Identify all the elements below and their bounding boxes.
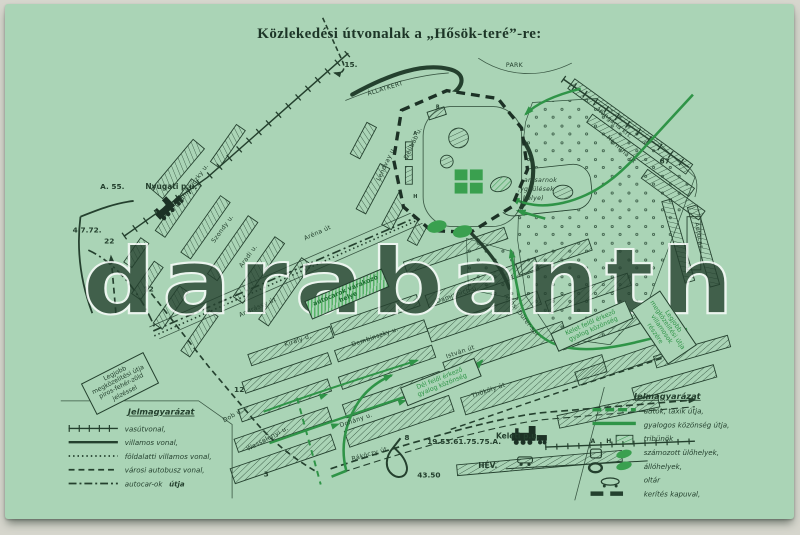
area-label-park: PARK xyxy=(506,62,524,69)
legend-left-item-4-suffix: útja xyxy=(169,480,185,489)
legend-right-item-6: kerítés kapuval, xyxy=(644,489,701,498)
legend-left-item-1: villamos vonal, xyxy=(125,438,178,447)
tribune-letter-h: H xyxy=(413,194,417,200)
legend-tribune-symbol xyxy=(616,435,633,444)
legend-fence-symbol xyxy=(591,491,604,495)
route-number-a55: A. 55. xyxy=(100,182,124,191)
legend-left-item-2: földalatti villamos vonal, xyxy=(125,452,212,461)
legend-left-item-3: városi autobusz vonal, xyxy=(125,466,205,475)
station-label-nyugati: Nyugati p.u. xyxy=(145,182,197,191)
heroes-square: A B H xyxy=(394,91,528,240)
station-label-hev: HÉV. xyxy=(478,461,497,470)
railway-nyugati xyxy=(124,53,349,236)
legend-left-item-0: vasútvonal, xyxy=(125,424,166,433)
route-number-15: 15. xyxy=(344,60,357,69)
legend-left-title: Jelmagyarázat xyxy=(126,407,196,417)
legend-right-item-0: autók, taxik útja, xyxy=(644,407,704,416)
iparcsarnok-hall xyxy=(553,185,573,199)
legend-altar-symbol xyxy=(601,478,619,487)
legend-tribune-letter-a: A xyxy=(591,438,596,445)
route-number-67: 67 xyxy=(659,157,669,166)
route-number-12b: 12 xyxy=(234,385,244,394)
route-number-8: 8 xyxy=(404,433,409,442)
route-number-4350: 43.50 xyxy=(417,471,440,480)
legend-left: Jelmagyarázat vasútvonal, villamos vonal… xyxy=(61,401,232,498)
legend-standing-symbol xyxy=(589,463,602,472)
route-number-3: 3 xyxy=(264,470,269,479)
legend-right-item-5: oltár xyxy=(644,476,661,485)
legend-right-item-3: számozott ülőhelyek, xyxy=(644,448,719,457)
legend-right-item-1: gyalogos közönség útja, xyxy=(644,420,730,429)
postcard: Iparcsarnok (nagygyülések helye) xyxy=(5,4,794,519)
route-numbers-keleti: 19.53.61.75.75.A. xyxy=(427,437,501,446)
station-label-keleti: Keleti p.u. xyxy=(496,431,540,440)
map-svg: Iparcsarnok (nagygyülések helye) xyxy=(5,4,794,519)
altar-circle xyxy=(449,128,469,148)
scanned-postcard-page: Iparcsarnok (nagygyülések helye) xyxy=(0,0,800,535)
legend-right-item-2: tribünök xyxy=(644,434,674,443)
legend-left-item-4: autocar-ok xyxy=(125,480,164,489)
page-title: Közlekedési útvonalak a „Hősök-teré”-re: xyxy=(5,26,794,43)
legend-right-item-4: állóhelyek, xyxy=(644,462,682,471)
legend-right-title: Jelmagyarázat xyxy=(632,391,702,401)
tribune-letter-b: B xyxy=(436,104,440,110)
legend-tribune-letter-h: H xyxy=(606,438,611,445)
street-label-rakoczy: Rákóczy út xyxy=(351,445,389,463)
